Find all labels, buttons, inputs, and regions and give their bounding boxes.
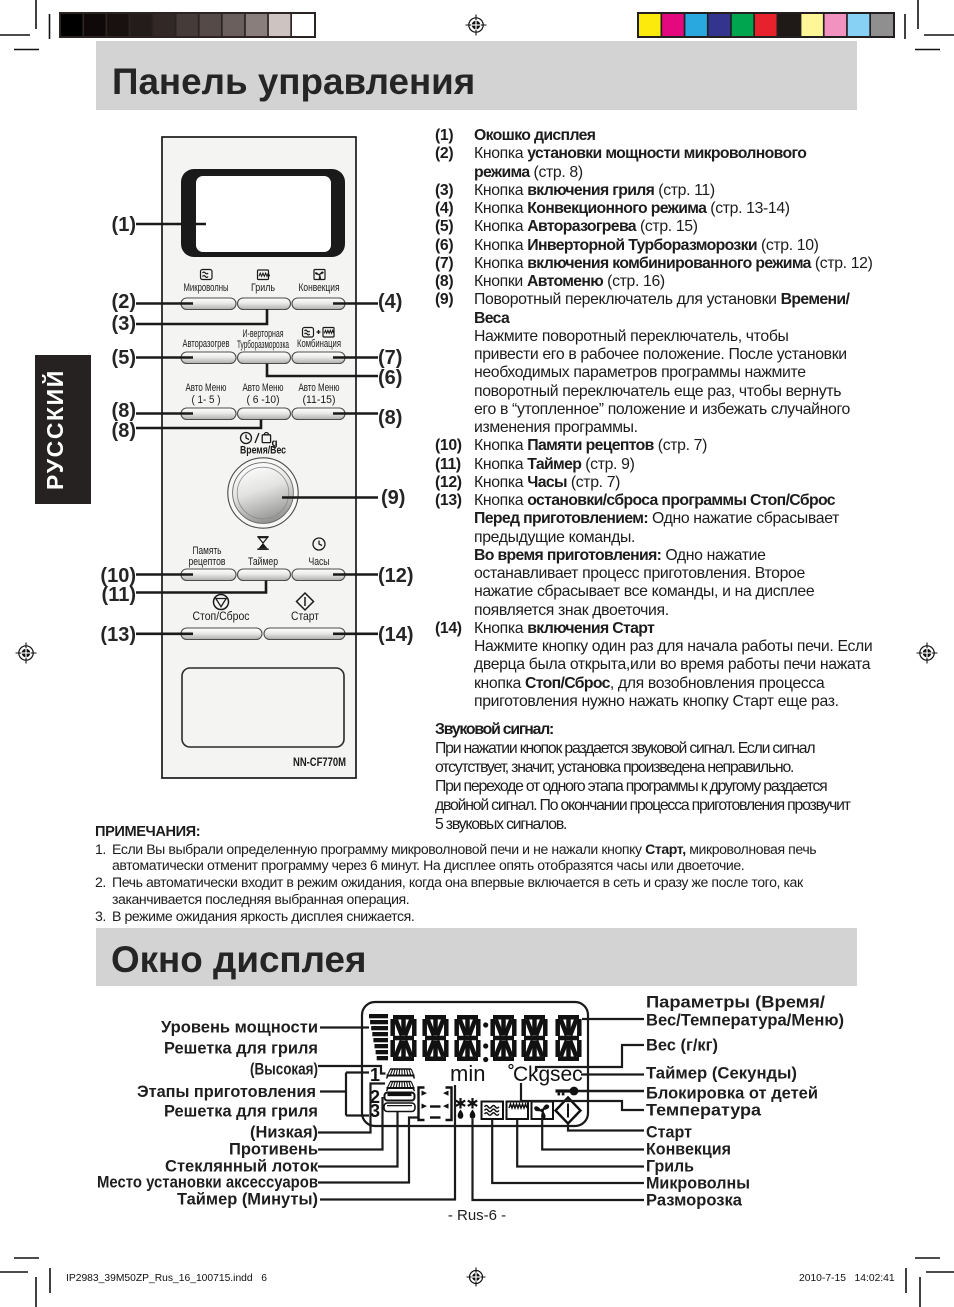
svg-text:Блокировка от детей: Блокировка от детей	[646, 1085, 818, 1103]
svg-text:РУССКИЙ: РУССКИЙ	[41, 369, 68, 490]
svg-text:(2): (2)	[112, 291, 136, 313]
svg-text:Этапы приготовления: Этапы приготовления	[137, 1083, 316, 1101]
svg-text:Часы: Часы	[309, 556, 330, 568]
svg-text:рецептов: рецептов	[189, 556, 226, 568]
svg-text:(3): (3)	[112, 313, 136, 335]
svg-text:(12): (12)	[378, 565, 414, 587]
svg-text:Микроволны: Микроволны	[184, 282, 229, 294]
svg-text:(Низкая): (Низкая)	[250, 1124, 318, 1142]
svg-text:(9): (9)	[381, 487, 405, 509]
svg-text:Температура: Температура	[646, 1102, 762, 1120]
svg-text:NN-CF770M: NN-CF770M	[293, 756, 346, 769]
svg-text:Таймер (Секунды): Таймер (Секунды)	[646, 1065, 797, 1083]
svg-text:Конвекция: Конвекция	[646, 1141, 731, 1159]
svg-text:- Rus-6 -: - Rus-6 -	[448, 1207, 506, 1224]
svg-text:(6): (6)	[378, 367, 402, 389]
svg-text:Авто Меню: Авто Меню	[243, 382, 284, 394]
svg-text:(Высокая): (Высокая)	[250, 1061, 318, 1079]
svg-text:( 6 -10): ( 6 -10)	[247, 394, 280, 406]
svg-text:Старт: Старт	[646, 1124, 692, 1142]
svg-text:Таймер (Минуты): Таймер (Минуты)	[177, 1191, 318, 1209]
svg-text:Гриль: Гриль	[251, 282, 275, 294]
svg-text:Авто Меню: Авто Меню	[186, 382, 227, 394]
svg-text:Решетка для гриля: Решетка для гриля	[164, 1040, 318, 1058]
svg-text:(8): (8)	[378, 407, 402, 429]
svg-text:(1): (1)	[112, 214, 136, 236]
svg-text:( 1- 5 ): ( 1- 5 )	[192, 394, 221, 406]
svg-text:Вес/Температура/Меню): Вес/Температура/Меню)	[646, 1012, 844, 1030]
svg-text:Микроволны: Микроволны	[646, 1175, 750, 1193]
svg-text:Разморозка: Разморозка	[646, 1192, 743, 1210]
svg-text:Решетка для гриля: Решетка для гриля	[164, 1103, 318, 1121]
svg-text:Комбинация: Комбинация	[297, 338, 341, 350]
svg-text:Время/Вес: Время/Вес	[240, 445, 286, 457]
svg-text:Турборазморозка: Турборазморозка	[237, 339, 289, 351]
svg-text:(5): (5)	[112, 347, 136, 369]
svg-text:Место установки аксессуаров: Место установки аксессуаров	[97, 1174, 318, 1192]
svg-text:(11): (11)	[102, 584, 136, 606]
svg-text:Стоп/Сброс: Стоп/Сброс	[193, 609, 250, 623]
svg-text:Противень: Противень	[229, 1141, 318, 1159]
svg-text:(7): (7)	[378, 347, 402, 369]
svg-text:(8): (8)	[112, 420, 136, 442]
svg-text:(13): (13)	[100, 624, 136, 646]
svg-text:Гриль: Гриль	[646, 1158, 694, 1176]
svg-text:(11-15): (11-15)	[303, 394, 336, 406]
svg-text:(8): (8)	[112, 400, 136, 422]
svg-text:Конвекция: Конвекция	[299, 282, 340, 294]
svg-text:Уровень мощности: Уровень мощности	[161, 1019, 318, 1037]
svg-text:min: min	[450, 1061, 485, 1086]
svg-text:Старт: Старт	[291, 609, 319, 623]
svg-text:Авторазогрев: Авторазогрев	[183, 338, 230, 350]
svg-text:Параметры (Время/: Параметры (Время/	[646, 994, 825, 1012]
svg-text:Авто Меню: Авто Меню	[299, 382, 340, 394]
svg-text:(4): (4)	[378, 291, 402, 313]
svg-text:Таймер: Таймер	[248, 556, 278, 568]
svg-text:Вес (г/кг): Вес (г/кг)	[646, 1037, 718, 1055]
svg-text:C: C	[513, 1063, 528, 1086]
svg-text:(14): (14)	[378, 624, 414, 646]
svg-text:1: 1	[370, 1065, 380, 1085]
